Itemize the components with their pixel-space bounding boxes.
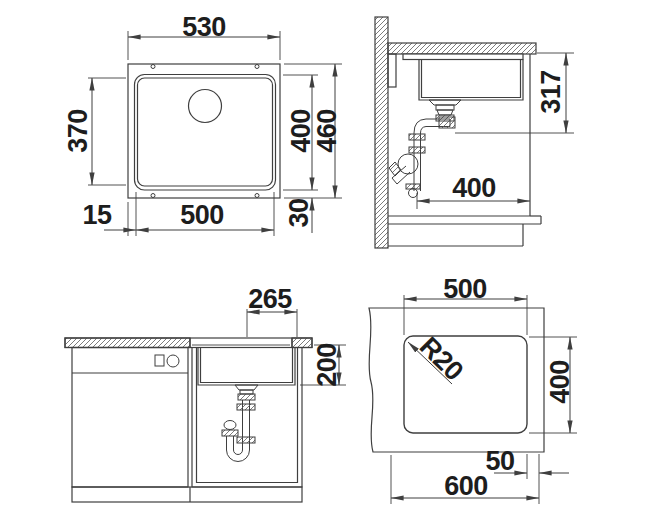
wall-section	[375, 17, 388, 248]
dim-side-depth: 400	[452, 175, 496, 202]
counter-panel	[369, 308, 544, 452]
dim-top-outer-height: 460	[314, 109, 341, 153]
sink-bowl-rim-inner	[138, 78, 273, 186]
control-knob	[167, 355, 179, 367]
side-view	[375, 17, 574, 248]
dim-top-outer-width: 530	[182, 14, 226, 41]
dim-top-rim-bottom: 30	[286, 198, 313, 227]
mounting-holes	[151, 65, 259, 198]
sink-base-cabinet	[192, 348, 302, 488]
drain-hole	[189, 90, 222, 123]
dim-top-inner-depth: 370	[65, 109, 92, 153]
dim-front-drain-offset: 265	[248, 286, 292, 313]
sink-outer-flange	[128, 64, 280, 198]
bowl-section	[419, 60, 523, 101]
dim-top-rim-left: 15	[82, 202, 111, 229]
dim-side-drain-height: 317	[538, 70, 565, 114]
dim-cutout-counter-width: 600	[444, 473, 488, 500]
dim-top-inner-width: 500	[180, 202, 224, 229]
sink-technical-drawing: 530 370 400 460 15 500 30 317 400 265 20…	[0, 0, 648, 530]
countertop-section	[388, 43, 536, 54]
wall-batten	[388, 54, 396, 87]
trap-bulge	[398, 154, 418, 174]
dim-cutout-edge-offset: 50	[485, 448, 514, 475]
dim-top-inner-height: 400	[288, 109, 315, 153]
sink-rim-section	[403, 54, 523, 60]
sink-bowl-rim-outer	[135, 75, 276, 191]
dim-cutout-height: 400	[547, 360, 574, 404]
front-drain-trap	[222, 385, 258, 462]
front-view	[65, 309, 346, 502]
dim-front-bowl-depth: 200	[314, 343, 341, 387]
plinth	[72, 487, 302, 502]
control-square	[155, 355, 164, 366]
dim-cutout-width: 500	[443, 276, 487, 303]
bowl-front	[198, 348, 295, 386]
pipe-end-cap	[409, 189, 418, 198]
drain-pipes	[389, 117, 455, 198]
dishwasher-cabinet	[72, 348, 188, 488]
